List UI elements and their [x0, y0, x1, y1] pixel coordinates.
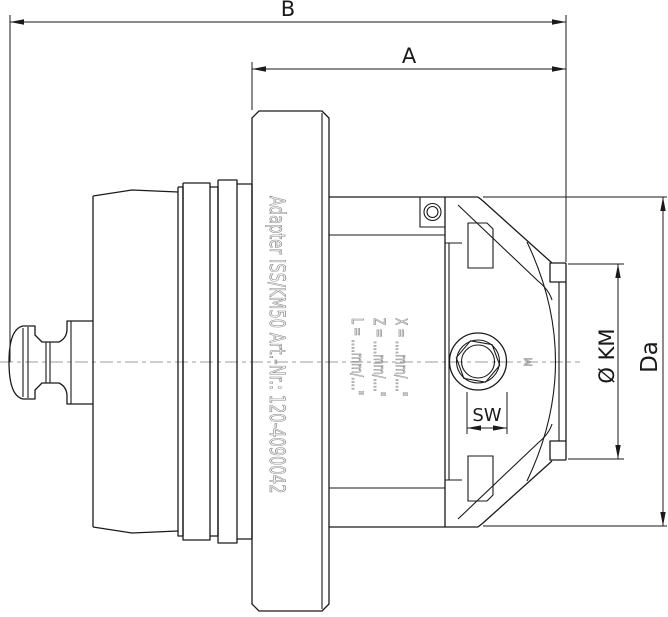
dimension-a-label: A: [402, 44, 417, 68]
technical-drawing-adapter-iss-km50: Adapter ISS/KM50 Art.-Nr.: 120-4090042 L…: [0, 0, 668, 617]
preset-engraving-block: L = ....mm/...." Z = ....mm/...." X = ..…: [347, 318, 409, 397]
preset-row-x: X = ....mm/....": [391, 318, 409, 397]
flange-engraving-text: Adapter ISS/KM50 Art.-Nr.: 120-4090042: [264, 196, 289, 493]
preset-row-l: L = ....mm/....": [347, 318, 365, 395]
dimension-a: A: [252, 44, 566, 110]
dimension-b-label: B: [281, 0, 295, 21]
drawing-canvas: Adapter ISS/KM50 Art.-Nr.: 120-4090042 L…: [0, 0, 668, 617]
dimension-sw: SW: [467, 392, 507, 434]
dimension-da-label: Da: [637, 341, 663, 373]
locking-screw-inner-circle: [427, 207, 438, 218]
cartridge-slot-bottom: [468, 456, 493, 501]
thread-marker-label: M: [522, 357, 535, 367]
preset-row-z: Z = ....mm/....": [369, 318, 387, 397]
locking-screw: [420, 197, 445, 227]
dimension-km-label: Ø KM: [595, 328, 619, 383]
dimension-sw-label: SW: [472, 405, 501, 426]
cartridge-slot-top: [468, 223, 493, 268]
flange: Adapter ISS/KM50 Art.-Nr.: 120-4090042: [252, 111, 329, 611]
collar-rings: [178, 180, 252, 543]
